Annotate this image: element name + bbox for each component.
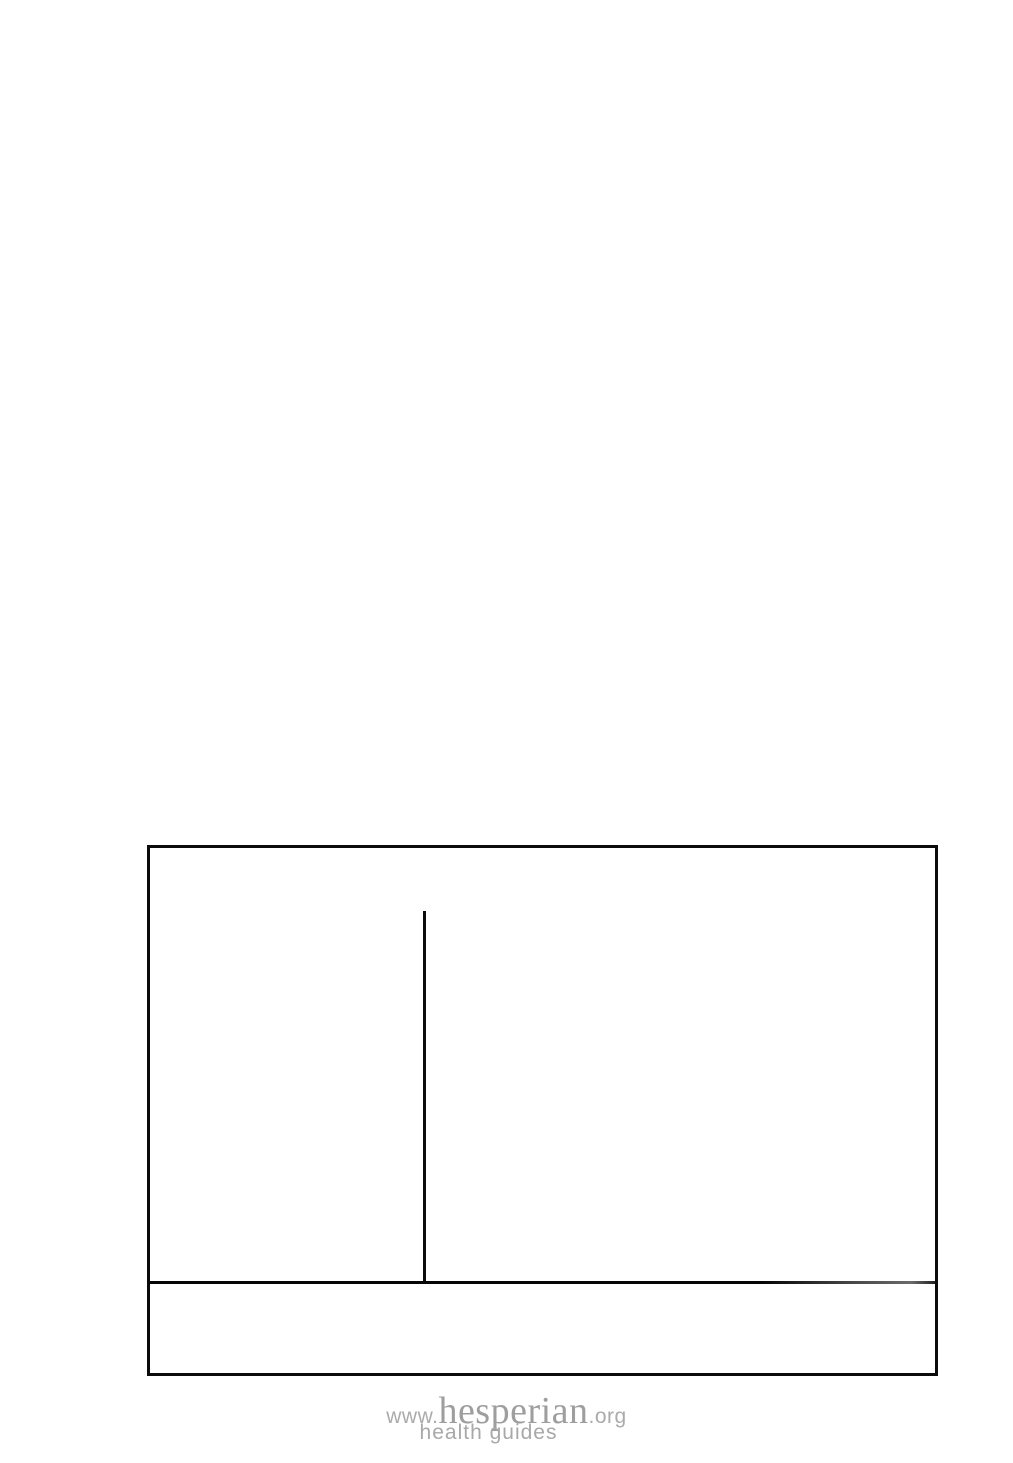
logo-tagline: health guides [420, 1422, 558, 1443]
story-box-left-cell [150, 848, 423, 1281]
document-page: www.hesperian.org health guides [0, 0, 1013, 1463]
hesperian-logo: www.hesperian.org health guides [0, 1392, 1013, 1443]
story-box-right-cell [426, 848, 935, 1281]
caption-row [150, 1284, 935, 1373]
logo-tld-suffix: .org [589, 1406, 627, 1427]
story-box [147, 845, 938, 1376]
column-divider-line [423, 911, 426, 1283]
